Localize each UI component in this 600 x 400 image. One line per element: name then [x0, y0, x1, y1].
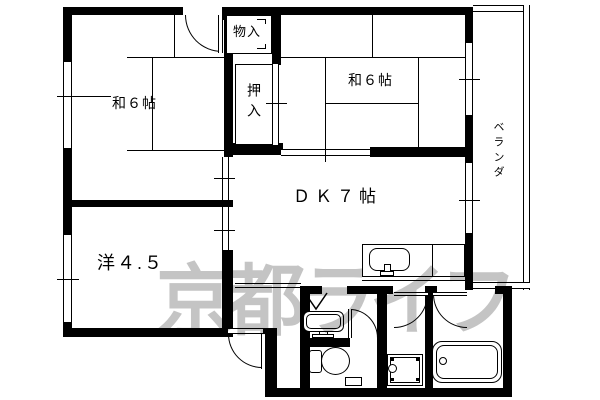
window-tick — [57, 96, 111, 97]
pan-bolt — [391, 378, 394, 381]
room-label-western: 洋４.５ — [97, 254, 164, 272]
storage-mark — [265, 44, 266, 49]
pan-bolt — [391, 358, 394, 361]
floor-plan: 京都ライフ 物入 — [0, 0, 600, 400]
veranda-edge — [523, 5, 530, 290]
toilet-paper-holder — [345, 377, 362, 386]
wall — [465, 15, 473, 43]
wall — [63, 148, 72, 235]
wall — [222, 7, 473, 15]
pan-bolt — [416, 378, 419, 381]
window — [63, 62, 72, 148]
wall — [63, 7, 72, 62]
room-label-closet: 押入 — [247, 83, 261, 123]
sliding-door — [222, 207, 229, 250]
door-tick — [266, 103, 287, 104]
tatami-line — [127, 150, 225, 151]
tatami-line — [325, 103, 419, 104]
wall — [63, 200, 233, 207]
tatami-line — [372, 13, 373, 58]
tatami-line — [174, 13, 175, 58]
wall — [63, 7, 183, 15]
room-label-japanese-right: 和６帖 — [348, 73, 393, 87]
door-tick — [214, 230, 235, 231]
door-tick — [214, 178, 235, 179]
room-label-japanese-left: 和６帖 — [112, 96, 157, 110]
watermark-text: 京都ライフ — [156, 262, 511, 340]
window-tick — [57, 279, 79, 280]
room-label-dk: ＤＫ７帖 — [293, 188, 381, 205]
bathtub-drain — [439, 357, 447, 365]
closet-sliding-front — [272, 64, 279, 145]
door-arc — [185, 15, 222, 52]
wall — [370, 147, 473, 157]
veranda-edge — [473, 5, 530, 12]
storage-mark — [265, 19, 266, 24]
room-label-storage: 物入 — [233, 25, 261, 38]
pan-bolt — [416, 358, 419, 361]
tatami-line — [127, 57, 225, 58]
window-tick — [459, 200, 480, 201]
toilet-bowl — [321, 347, 350, 375]
door-leaf — [218, 15, 223, 53]
window-tick — [459, 79, 480, 80]
pan-drain — [388, 364, 397, 373]
window — [465, 163, 473, 233]
room-label-veranda: ベランダ — [492, 121, 503, 181]
